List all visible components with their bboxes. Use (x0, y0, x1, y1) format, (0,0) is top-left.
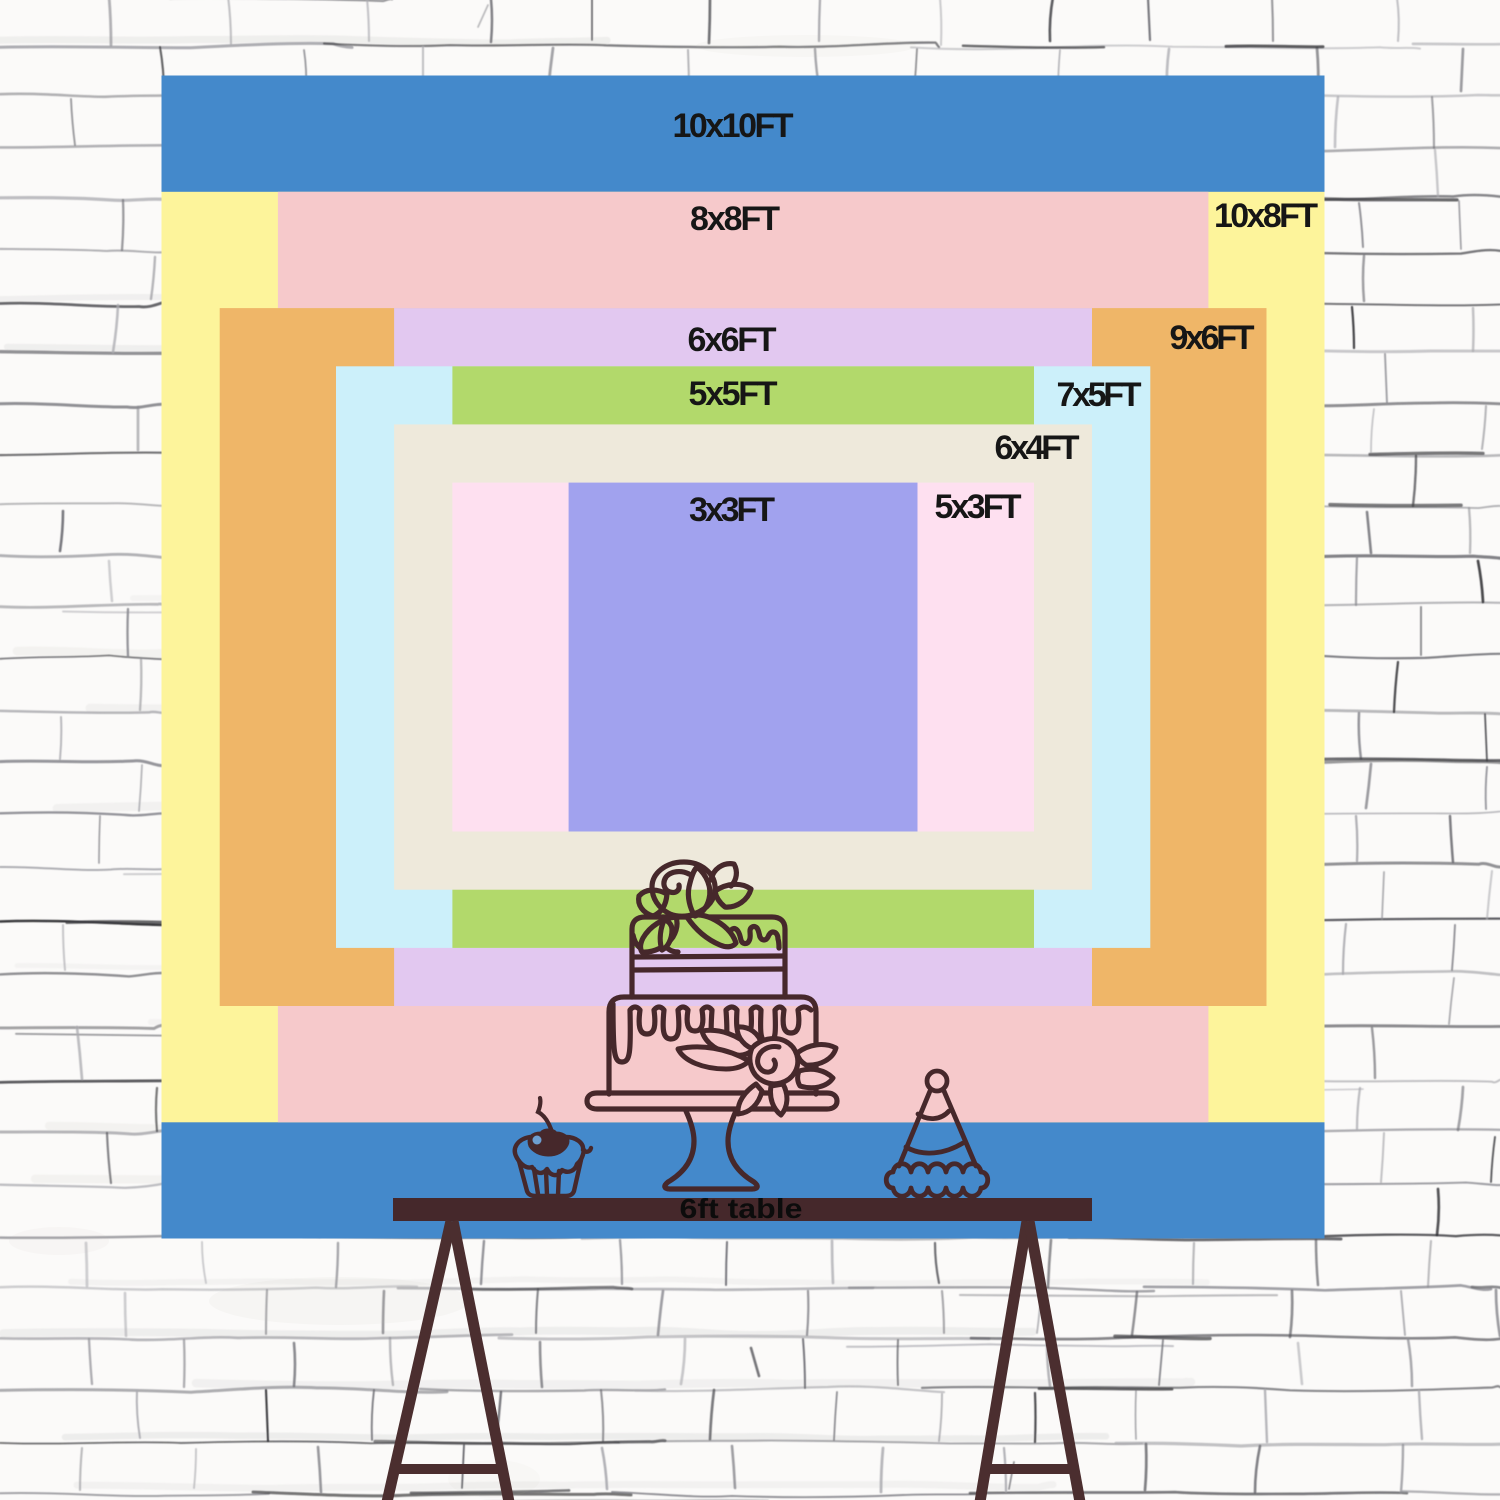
svg-text:5x3FT: 5x3FT (935, 488, 1022, 526)
svg-text:3x3FT: 3x3FT (689, 491, 775, 529)
svg-text:6x4FT: 6x4FT (995, 429, 1080, 467)
svg-text:10x8FT: 10x8FT (1214, 197, 1318, 235)
svg-text:5x5FT: 5x5FT (689, 375, 778, 413)
svg-text:9x6FT: 9x6FT (1170, 319, 1255, 357)
svg-text:10x10FT: 10x10FT (673, 107, 794, 145)
svg-text:8x8FT: 8x8FT (690, 200, 780, 238)
svg-text:6x6FT: 6x6FT (688, 321, 777, 359)
svg-text:7x5FT: 7x5FT (1057, 376, 1142, 414)
svg-text:6ft table: 6ft table (680, 1193, 803, 1224)
